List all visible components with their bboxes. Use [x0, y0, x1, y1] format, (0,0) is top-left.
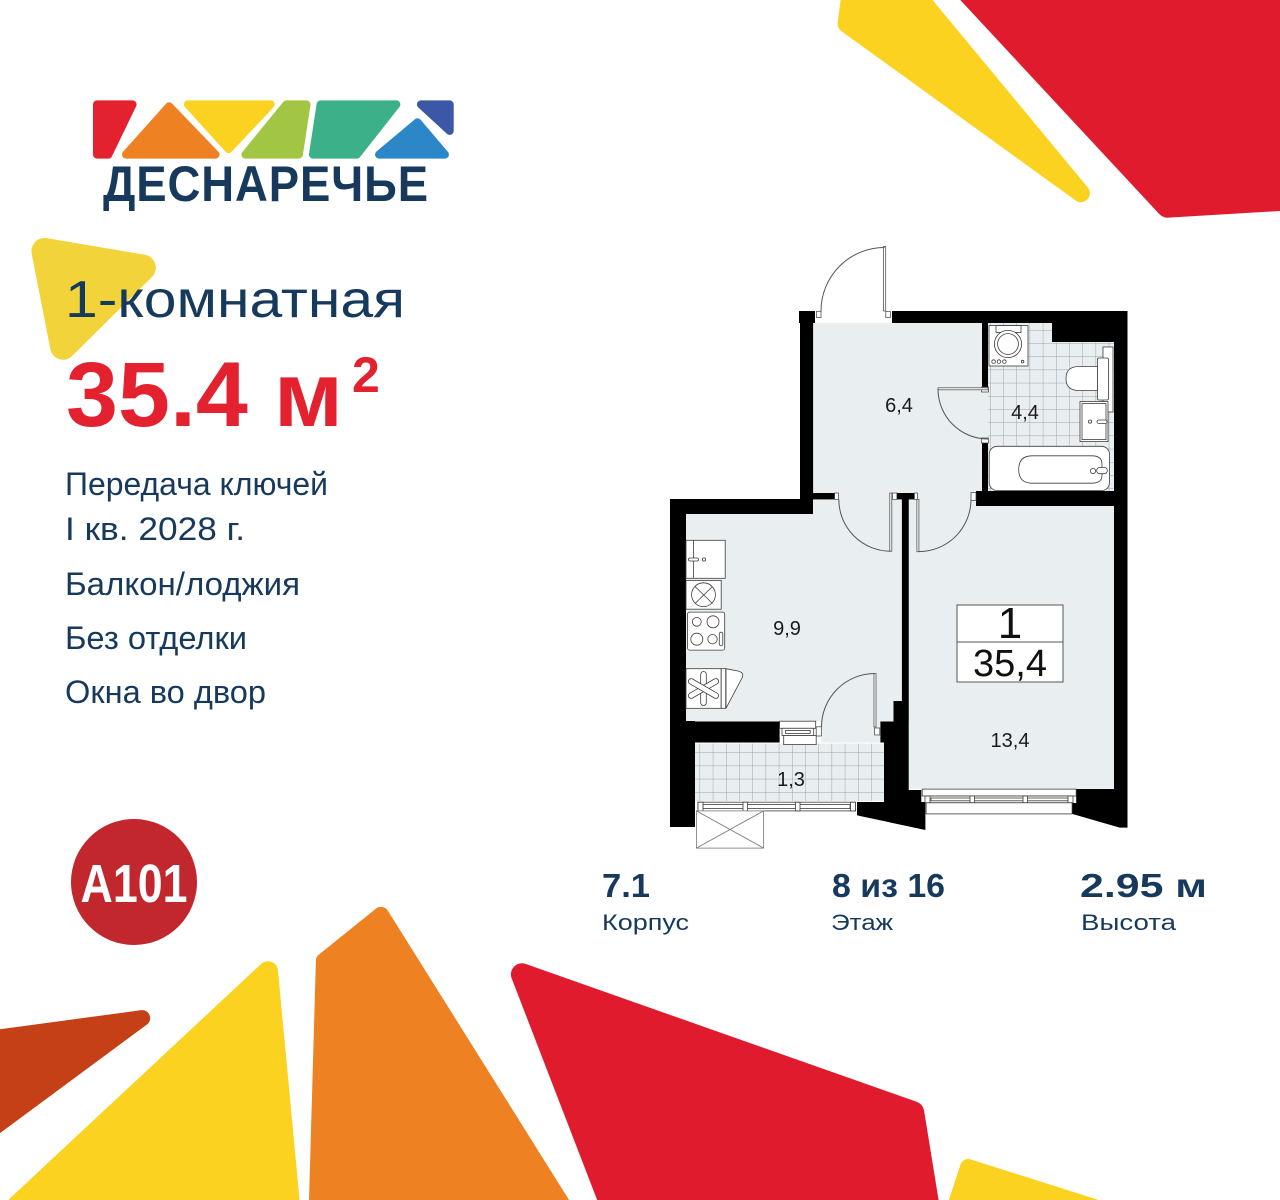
- svg-text:2.95 м: 2.95 м: [1080, 867, 1207, 904]
- svg-text:Без отделки: Без отделки: [65, 620, 247, 656]
- svg-text:Передача ключей: Передача ключей: [65, 466, 328, 502]
- svg-text:ДЕСНАРЕЧЬЕ: ДЕСНАРЕЧЬЕ: [103, 156, 429, 212]
- svg-text:Корпус: Корпус: [602, 910, 689, 935]
- svg-text:35.4 м: 35.4 м: [66, 344, 343, 446]
- svg-text:Окна во двор: Окна во двор: [65, 674, 266, 710]
- svg-text:4,4: 4,4: [1011, 402, 1039, 424]
- svg-text:6,4: 6,4: [885, 395, 913, 417]
- svg-text:Балкон/лоджия: Балкон/лоджия: [65, 566, 300, 602]
- svg-text:13,4: 13,4: [991, 730, 1030, 752]
- svg-text:1: 1: [998, 599, 1022, 648]
- svg-text:1-комнатная: 1-комнатная: [65, 271, 405, 329]
- svg-text:2: 2: [352, 347, 380, 403]
- svg-text:7.1: 7.1: [602, 867, 650, 904]
- svg-text:Высота: Высота: [1081, 910, 1177, 935]
- svg-text:1,3: 1,3: [777, 769, 805, 791]
- svg-text:A101: A101: [81, 854, 188, 914]
- svg-text:I кв. 2028 г.: I кв. 2028 г.: [65, 511, 245, 547]
- svg-text:9,9: 9,9: [773, 618, 801, 640]
- svg-text:Этаж: Этаж: [831, 910, 893, 935]
- svg-text:35,4: 35,4: [973, 643, 1047, 685]
- svg-text:8 из 16: 8 из 16: [832, 867, 945, 904]
